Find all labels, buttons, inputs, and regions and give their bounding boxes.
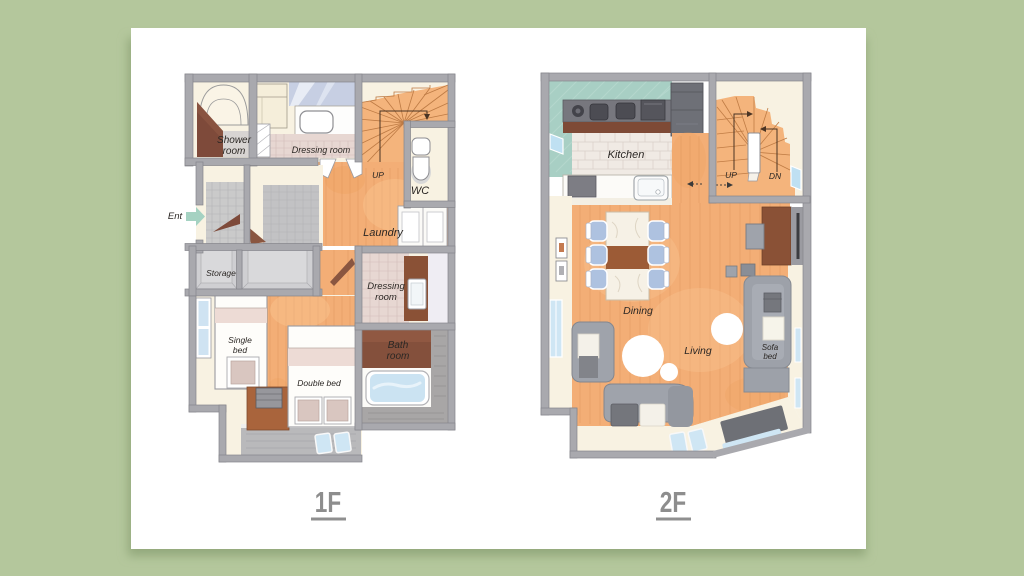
svg-text:Kitchen: Kitchen: [608, 149, 645, 161]
svg-text:Ent: Ent: [168, 211, 183, 222]
svg-text:bed: bed: [763, 352, 777, 361]
svg-text:Sofa: Sofa: [762, 343, 779, 352]
svg-text:room: room: [223, 146, 246, 157]
svg-text:Dressing: Dressing: [367, 281, 405, 292]
svg-text:room: room: [375, 292, 397, 303]
svg-text:Shower: Shower: [217, 135, 252, 146]
svg-text:Living: Living: [684, 345, 712, 357]
svg-text:room: room: [387, 351, 410, 362]
svg-text:bed: bed: [233, 345, 247, 355]
svg-text:Storage: Storage: [206, 268, 236, 278]
svg-text:Single: Single: [228, 335, 252, 345]
svg-text:Dining: Dining: [623, 305, 653, 317]
svg-text:UP: UP: [372, 170, 384, 180]
svg-text:Laundry: Laundry: [363, 227, 404, 239]
svg-text:1F: 1F: [315, 485, 341, 518]
svg-text:DN: DN: [769, 171, 782, 181]
svg-text:Double bed: Double bed: [297, 378, 341, 388]
svg-text:2F: 2F: [660, 485, 686, 518]
svg-text:Bath: Bath: [388, 340, 409, 351]
svg-text:WC: WC: [411, 185, 429, 197]
svg-text:Dressing room: Dressing room: [292, 145, 351, 155]
svg-text:UP: UP: [725, 170, 737, 180]
